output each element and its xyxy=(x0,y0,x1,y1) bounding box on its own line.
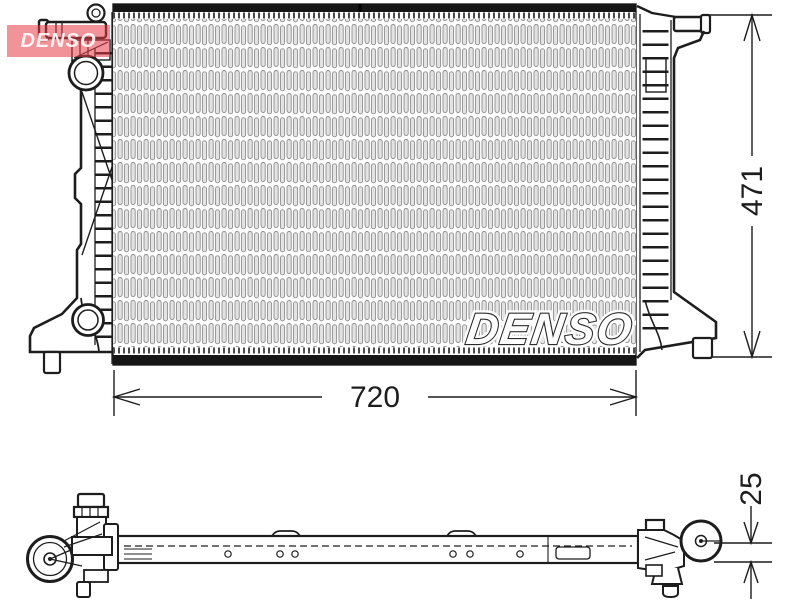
radiator-bottom-view xyxy=(28,494,722,597)
dimension-height-label: 471 xyxy=(736,166,769,216)
core-bottom-header xyxy=(113,355,636,365)
side-right-fitting xyxy=(638,520,721,597)
right-tank xyxy=(637,6,716,358)
dimension-depth-label: 25 xyxy=(735,472,768,505)
side-left-fitting xyxy=(28,494,119,597)
drawing-svg: DENSO DENSO 720 471 xyxy=(0,0,800,600)
denso-core-logo-text: DENSO xyxy=(463,305,636,354)
core-fin-matrix xyxy=(113,19,636,347)
denso-watermark: DENSO xyxy=(7,25,110,57)
dimension-depth: 25 xyxy=(714,472,772,599)
denso-watermark-text: DENSO xyxy=(20,30,96,53)
left-lower-port xyxy=(73,305,104,336)
denso-core-logo: DENSO DENSO xyxy=(463,305,636,354)
radiator-front-view: DENSO DENSO xyxy=(30,4,716,373)
radiator-technical-drawing: DENSO DENSO 720 471 xyxy=(0,0,800,600)
dimension-width: 720 xyxy=(114,370,636,416)
left-tank-outline xyxy=(30,60,113,352)
core-top-header xyxy=(113,4,636,12)
right-mounting-foot xyxy=(693,338,712,358)
dimension-width-label: 720 xyxy=(350,381,400,414)
bleed-screw xyxy=(88,5,105,22)
side-right-foot xyxy=(663,586,678,597)
top-outlet-pipe xyxy=(674,17,704,31)
left-tank xyxy=(30,5,113,374)
left-mounting-foot xyxy=(44,352,60,373)
side-left-foot xyxy=(77,582,90,597)
dimension-height: 471 xyxy=(707,15,772,357)
